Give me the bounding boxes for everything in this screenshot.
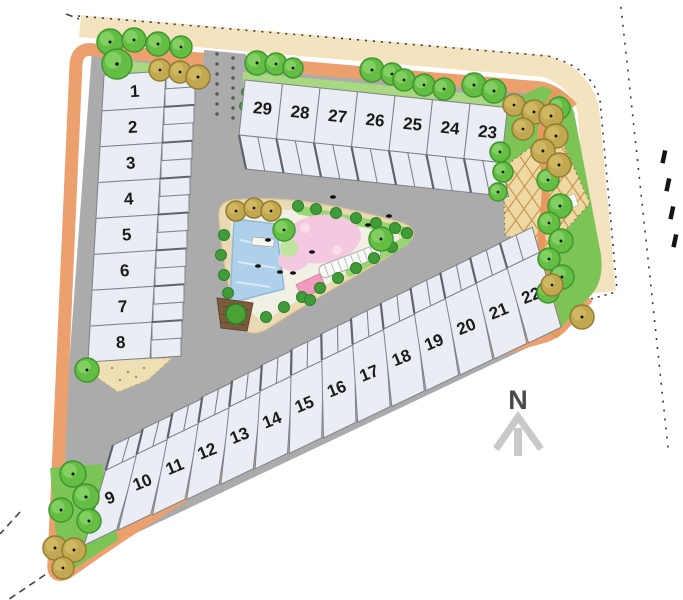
road-mark <box>668 206 675 220</box>
lot-divider <box>321 334 322 360</box>
boundary-dotted-line <box>591 292 616 299</box>
parking-cell <box>162 141 192 161</box>
parking-cell <box>164 105 194 125</box>
tree-highlight <box>76 487 90 501</box>
sand-speckle <box>135 376 137 378</box>
entrance-dot <box>231 116 234 119</box>
tree-highlight <box>514 120 526 132</box>
bush <box>226 304 246 324</box>
shrub <box>219 230 230 241</box>
tree-center <box>292 67 295 70</box>
tree-highlight <box>540 214 552 226</box>
tree-center <box>581 316 584 319</box>
entrance-dot <box>215 92 218 95</box>
site-plan-drawing: 1234567829282726252423910111213141516171… <box>0 0 683 600</box>
tree-icon <box>273 219 295 241</box>
site-plan: 1234567829282726252423910111213141516171… <box>0 0 683 600</box>
tree-highlight <box>524 102 537 115</box>
sand-speckle <box>127 371 129 373</box>
tree-highlight <box>246 200 257 211</box>
parking-cell <box>155 266 185 286</box>
tree-icon <box>75 358 99 382</box>
lot-number: 24 <box>440 118 461 139</box>
lot-number: 28 <box>290 102 311 123</box>
tree-center <box>473 84 476 87</box>
tree-icon <box>433 78 455 100</box>
olive-tree-icon <box>52 557 74 579</box>
tree-center <box>275 63 278 66</box>
tree-highlight <box>54 559 66 571</box>
tree-highlight <box>172 38 184 50</box>
road-mark <box>671 234 678 248</box>
tree-highlight <box>171 63 183 75</box>
olive-tree-icon <box>547 153 571 177</box>
tree-highlight <box>263 203 274 214</box>
tree-highlight <box>77 360 90 373</box>
entrance-dot <box>231 86 234 89</box>
tree-highlight <box>572 307 585 320</box>
entrance-dot <box>215 82 218 85</box>
north-label: N <box>508 385 528 415</box>
entrance-dot <box>215 52 218 55</box>
tree-center <box>423 84 426 87</box>
tree-center <box>542 150 545 153</box>
tree-icon <box>393 69 415 91</box>
road-mark <box>660 150 667 164</box>
tree-highlight <box>505 96 517 108</box>
tree-highlight <box>63 464 77 478</box>
tree-center <box>548 258 551 261</box>
tree-icon <box>146 32 170 56</box>
tree-highlight <box>362 60 375 73</box>
park-figure <box>265 238 271 242</box>
tree-center <box>443 88 446 91</box>
tree-highlight <box>550 196 563 209</box>
tree-highlight <box>105 52 122 69</box>
tree-highlight <box>464 75 477 88</box>
tree-center <box>60 509 63 512</box>
tree-highlight <box>188 67 201 80</box>
shrub <box>293 201 304 212</box>
tree-center <box>197 76 200 79</box>
shrub <box>351 213 362 224</box>
parking-cell <box>156 248 186 268</box>
tree-center <box>551 284 554 287</box>
tree-center <box>502 171 505 174</box>
tree-center <box>86 369 89 372</box>
tree-center <box>533 111 536 114</box>
tree-center <box>493 90 496 93</box>
tree-highlight <box>79 511 92 524</box>
tree-icon <box>369 227 393 251</box>
parking-cell <box>153 302 183 322</box>
tree-highlight <box>51 500 64 513</box>
park-figure <box>255 264 261 268</box>
lot-number: 23 <box>477 122 498 143</box>
lot-number: 5 <box>121 225 131 244</box>
shrub <box>261 312 272 323</box>
tree-center <box>371 69 374 72</box>
blossom-highlight <box>332 245 342 255</box>
tree-center <box>560 240 563 243</box>
tree-center <box>256 62 259 65</box>
park-figure <box>309 250 315 254</box>
tree-highlight <box>543 276 555 288</box>
tree-highlight <box>533 141 546 154</box>
entrance-dot <box>215 112 218 115</box>
olive-tree-icon <box>149 59 171 81</box>
lot-number: 29 <box>252 98 273 119</box>
shrub <box>216 250 227 261</box>
shrub <box>333 273 344 284</box>
tree-center <box>522 128 525 131</box>
tree-highlight <box>415 76 427 88</box>
tree-center <box>54 547 57 550</box>
tree-center <box>235 210 238 213</box>
tree-highlight <box>435 80 447 92</box>
tree-center <box>555 135 558 138</box>
tree-center <box>84 495 87 498</box>
road-mark <box>664 178 671 192</box>
parking-cell <box>152 320 182 340</box>
entrance-dot <box>215 62 218 65</box>
boundary-dotted-line <box>620 0 668 448</box>
tree-icon <box>49 498 73 522</box>
tree-icon <box>413 74 435 96</box>
sand-speckle <box>111 367 113 369</box>
shrub <box>279 302 290 313</box>
lot-divider <box>291 349 292 375</box>
tree-center <box>558 164 561 167</box>
tree-center <box>380 238 383 241</box>
olive-tree-icon <box>186 65 210 89</box>
tree-center <box>62 567 65 570</box>
tree-center <box>497 191 500 194</box>
tree-center <box>179 71 182 74</box>
tree-icon <box>102 49 132 79</box>
olive-tree-icon <box>261 201 281 221</box>
lot-number: 4 <box>123 189 134 208</box>
lot-number: 6 <box>119 261 129 280</box>
tree-highlight <box>395 71 407 83</box>
tree-highlight <box>124 30 137 43</box>
tree-center <box>115 62 119 66</box>
parking-cell <box>158 213 188 233</box>
lot-number: 8 <box>116 333 126 352</box>
tree-icon <box>493 162 513 182</box>
parking-cell <box>154 284 184 304</box>
parking-cell <box>151 338 181 358</box>
north-arrow-stem <box>514 428 522 456</box>
tree-icon <box>360 58 384 82</box>
tree-highlight <box>285 60 296 71</box>
tree-center <box>270 210 273 213</box>
tree-center <box>157 43 160 46</box>
parking-cell <box>161 159 191 179</box>
tree-center <box>180 46 183 49</box>
tree-center <box>547 179 550 182</box>
tree-highlight <box>100 32 114 46</box>
lot-number: 27 <box>327 106 348 127</box>
olive-tree-icon <box>512 118 534 140</box>
tree-highlight <box>495 164 506 175</box>
tree-highlight <box>45 538 58 551</box>
north-arrow: N <box>496 385 541 456</box>
park-figure <box>290 271 296 275</box>
tree-icon <box>60 461 86 487</box>
tree-icon <box>489 183 507 201</box>
entrance-dot <box>231 56 234 59</box>
entrance-dot <box>215 72 218 75</box>
tree-highlight <box>484 81 497 94</box>
park-figure <box>386 214 392 218</box>
entrance-dot <box>231 76 234 79</box>
tree-highlight <box>491 185 501 195</box>
park-figure <box>277 270 283 274</box>
tree-center <box>253 207 256 210</box>
shrub <box>223 288 234 299</box>
parking-cell <box>163 123 193 143</box>
tree-highlight <box>267 55 279 67</box>
tree-center <box>133 39 136 42</box>
tree-highlight <box>64 540 77 553</box>
entrance-dot <box>231 96 234 99</box>
sand-speckle <box>119 379 121 381</box>
shrub <box>331 208 342 219</box>
tree-center <box>403 79 406 82</box>
tree-icon <box>122 28 146 52</box>
tree-highlight <box>492 144 503 155</box>
tree-highlight <box>540 250 552 262</box>
olive-tree-icon <box>570 305 594 329</box>
shrub <box>402 228 413 239</box>
tree-highlight <box>148 34 161 47</box>
lot-number: 2 <box>127 118 137 137</box>
parking-cell <box>160 177 190 197</box>
olive-tree-icon <box>226 201 246 221</box>
tree-icon <box>283 58 303 78</box>
lot-number: 1 <box>129 82 139 101</box>
shrub <box>369 253 380 264</box>
entrance-dot <box>215 102 218 105</box>
tree-center <box>391 73 394 76</box>
tree-highlight <box>551 231 564 244</box>
entrance-dot <box>231 66 234 69</box>
tree-highlight <box>275 221 287 233</box>
lot-number: 7 <box>117 297 127 316</box>
tree-center <box>499 151 502 154</box>
tree-highlight <box>549 155 562 168</box>
tree-center <box>88 520 91 523</box>
blossom-highlight <box>300 223 310 233</box>
lot-number: 25 <box>402 114 423 135</box>
tree-center <box>108 40 111 43</box>
tree-highlight <box>151 61 163 73</box>
lot-number: 26 <box>365 110 386 131</box>
tree-center <box>71 472 74 475</box>
tree-highlight <box>541 106 554 119</box>
tree-highlight <box>546 126 559 139</box>
tree-center <box>559 205 562 208</box>
olive-tree-icon <box>541 274 563 296</box>
entrance-dot <box>231 106 234 109</box>
park-figure <box>365 223 371 227</box>
park-figure <box>330 195 336 199</box>
shrub <box>305 295 316 306</box>
tree-icon <box>170 36 192 58</box>
tree-center <box>159 69 162 72</box>
tree-center <box>73 549 76 552</box>
tree-highlight <box>247 53 260 66</box>
tree-icon <box>73 484 99 510</box>
shrub <box>315 283 326 294</box>
lot-number: 3 <box>125 153 135 172</box>
tree-icon <box>77 509 101 533</box>
tree-highlight <box>228 203 239 214</box>
tree-center <box>550 115 553 118</box>
parking-cell <box>157 231 187 251</box>
tree-center <box>513 104 516 107</box>
sand-speckle <box>143 367 145 369</box>
lawn-mound <box>280 239 298 257</box>
tree-center <box>548 222 551 225</box>
shrub <box>311 204 322 215</box>
shrub <box>219 270 230 281</box>
tree-center <box>283 229 286 232</box>
shrub <box>351 263 362 274</box>
parking-cell <box>159 195 189 215</box>
parking-cell <box>165 87 195 107</box>
tree-icon <box>482 79 506 103</box>
tree-icon <box>490 142 510 162</box>
tree-highlight <box>371 229 384 242</box>
